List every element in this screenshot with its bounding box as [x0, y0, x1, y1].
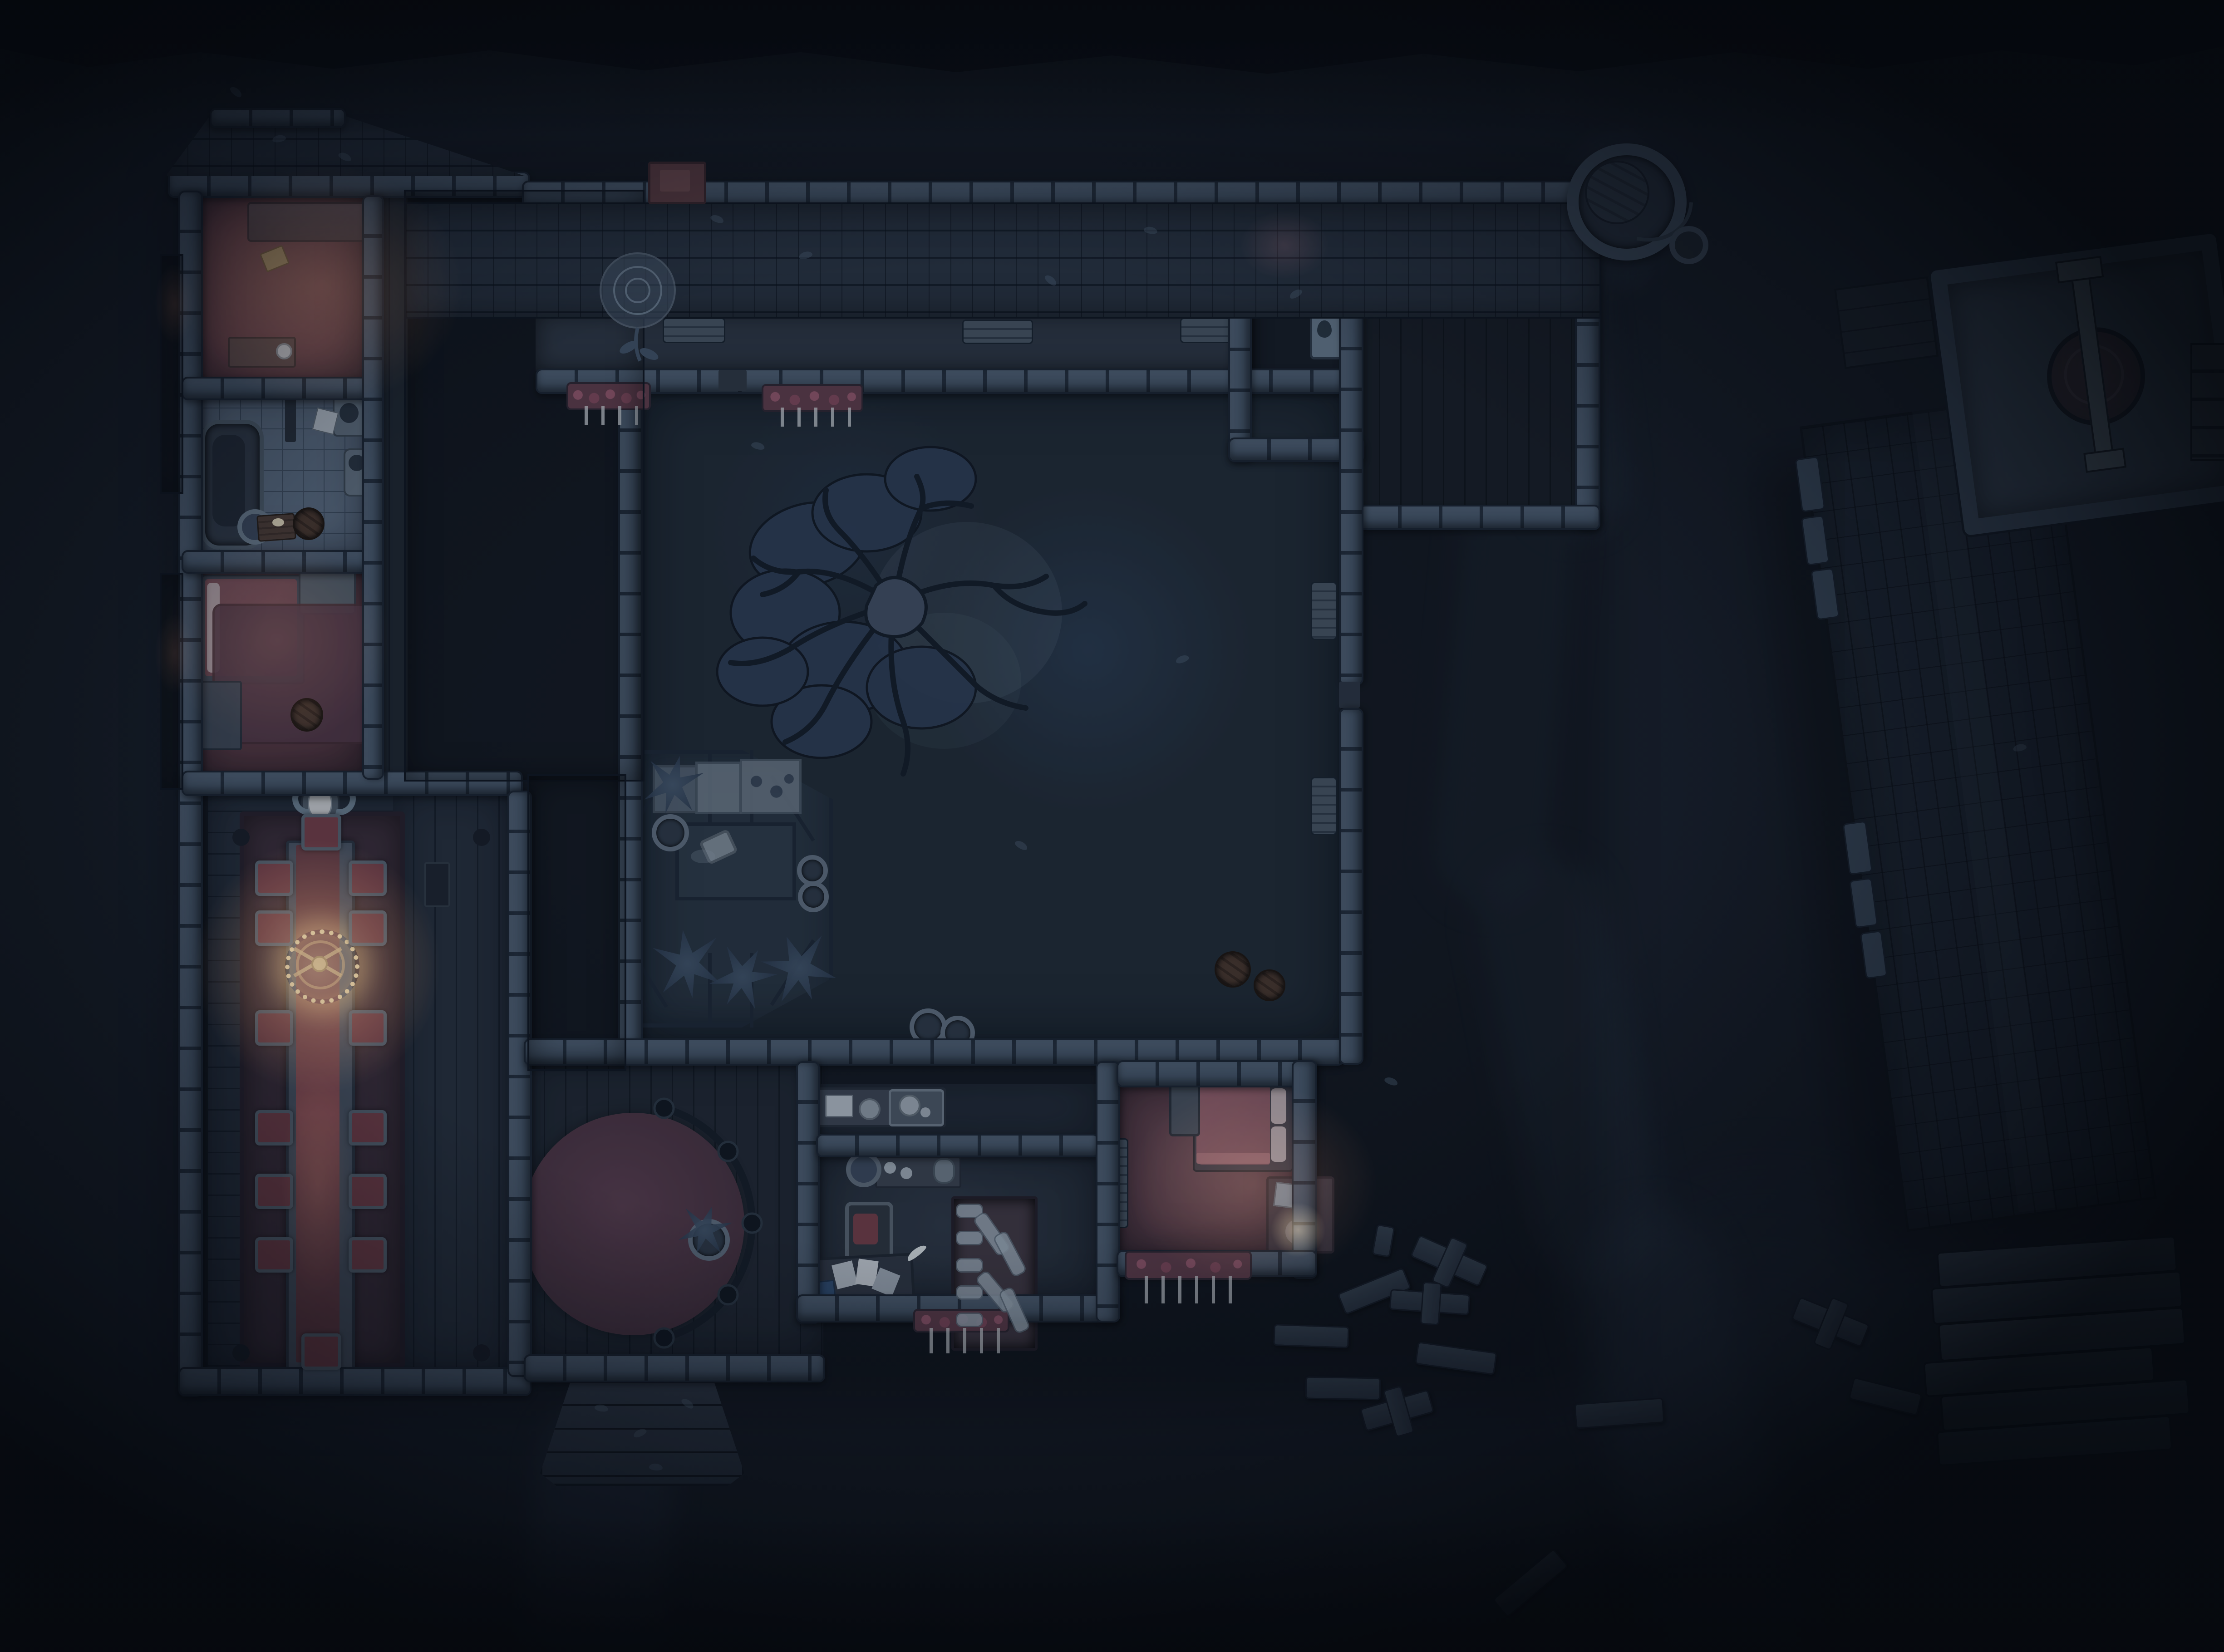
jug [933, 1158, 955, 1184]
grave-plank-marker [1273, 1324, 1349, 1348]
mug [884, 1162, 896, 1174]
courtyard-bench-east [1311, 582, 1337, 640]
tree-line [0, 0, 2224, 84]
greenhouse-pot [652, 814, 689, 851]
dining-chair [255, 1110, 293, 1146]
grave-plank-marker [1415, 1342, 1497, 1375]
grave-plank-marker [1372, 1224, 1395, 1258]
wall [796, 1061, 820, 1324]
lumber-pile [1928, 1235, 2198, 1488]
wall [182, 377, 372, 400]
corridor-bench [663, 318, 725, 343]
edge-shade-bottom [0, 1516, 2224, 1652]
plate [859, 1098, 881, 1120]
wall [524, 1354, 825, 1382]
corridor-bench [962, 320, 1033, 344]
wooden-stairs [2190, 343, 2224, 461]
teacup [920, 1107, 930, 1117]
greenhouse-rafter [708, 953, 712, 1028]
window-flower-box [1125, 1251, 1252, 1280]
west-wing-roof-lower [527, 774, 626, 1071]
dining-chair [349, 1237, 387, 1273]
wooden-dock [1834, 276, 1939, 369]
grave-plank-marker [1492, 1549, 1569, 1618]
table-runner [296, 845, 340, 1362]
carpet-post [232, 1344, 250, 1362]
dining-chair [255, 1237, 293, 1273]
washboard [256, 513, 296, 542]
grave-plank-marker [1305, 1377, 1381, 1401]
carpet-post [232, 829, 250, 846]
millstone-platform [1918, 223, 2224, 524]
courtyard-barrel [1254, 969, 1285, 1001]
dining-chair [255, 1174, 293, 1209]
door-corridor [718, 370, 747, 391]
dining-chair [255, 910, 293, 946]
teapot [899, 1095, 920, 1116]
wall [1096, 1061, 1120, 1323]
courtyard-bench-east [1311, 777, 1337, 835]
master-pillow [1271, 1126, 1286, 1162]
wall [1292, 1060, 1317, 1279]
bathtub-basin [212, 435, 245, 526]
grave-cross-marker [1791, 1297, 1870, 1347]
dining-chair [255, 1010, 293, 1046]
battlemap-canvas [0, 0, 2224, 1652]
courtyard-barrel [1215, 951, 1251, 988]
greenhouse-pot [798, 881, 829, 912]
blanket-fold [1196, 1153, 1270, 1164]
wall [1359, 505, 1600, 530]
west-eave [160, 254, 183, 494]
planting-bed [695, 762, 742, 814]
grave-plank-marker [1574, 1397, 1664, 1429]
mug [900, 1167, 912, 1179]
mug [276, 343, 292, 359]
dining-walkway-floor [393, 791, 509, 1371]
scroll-roll [956, 1313, 983, 1327]
dining-chair [349, 860, 387, 896]
dining-chair [349, 1010, 387, 1046]
grave-cross-marker [1410, 1234, 1489, 1287]
dining-chair [255, 860, 293, 896]
grave-cross-bar [1420, 1282, 1442, 1326]
roof-ridge [210, 108, 346, 128]
dining-chair [349, 910, 387, 946]
greenhouse-center-bed [675, 822, 796, 900]
grave-cross-bar [1383, 1386, 1415, 1438]
chandelier-hub [311, 956, 328, 972]
grave-cross-bar [1813, 1297, 1850, 1351]
wall [178, 1367, 531, 1396]
carpet-post [473, 829, 490, 846]
dining-head-chair [301, 814, 341, 851]
dirt-path-east3 [1466, 845, 1674, 1297]
dining-chair [349, 1174, 387, 1209]
wall [182, 550, 372, 574]
storage-chest [1169, 1084, 1200, 1136]
soap [272, 518, 284, 526]
leaf-icon [229, 85, 244, 99]
armchair-cushion [853, 1214, 878, 1244]
door-courtyard-east [1339, 682, 1360, 708]
corridor-bench [1180, 318, 1233, 343]
bedroom-barrel [290, 698, 323, 732]
leaf-icon [1383, 1076, 1398, 1087]
scroll-roll [956, 1258, 983, 1273]
water-drop-icon [1317, 320, 1332, 338]
dirt-path-east2 [1430, 477, 1580, 912]
chimney-flue [660, 170, 690, 192]
toilet-seat [340, 403, 359, 423]
west-eave [160, 573, 183, 790]
wall [1117, 1060, 1317, 1087]
dining-chair [349, 1110, 387, 1146]
door-dining-east [424, 862, 450, 907]
well-lid [1585, 161, 1649, 224]
wall [816, 1134, 1099, 1157]
wall [362, 195, 384, 780]
planting-bed [740, 759, 802, 814]
grave-plank-marker [1848, 1377, 1922, 1416]
dining-foot-chair [301, 1333, 341, 1370]
carpet-post [473, 1344, 490, 1362]
north-wing-roof [404, 202, 1601, 319]
wall [536, 369, 1344, 394]
grave-cross-bar [1432, 1236, 1469, 1288]
scroll-roll [956, 1285, 983, 1300]
scroll-roll [956, 1231, 983, 1245]
tulip-row [767, 408, 856, 427]
bath-barrel [293, 507, 325, 540]
open-book [825, 1095, 853, 1117]
well-bucket [1669, 226, 1708, 264]
grave-cross-marker [1389, 1289, 1471, 1315]
tulip-row [916, 1328, 1005, 1353]
cabinet [201, 681, 242, 750]
tulip-row [1131, 1276, 1245, 1303]
master-pillow [1271, 1088, 1286, 1124]
wall [1339, 708, 1363, 1065]
dresser [247, 202, 367, 242]
